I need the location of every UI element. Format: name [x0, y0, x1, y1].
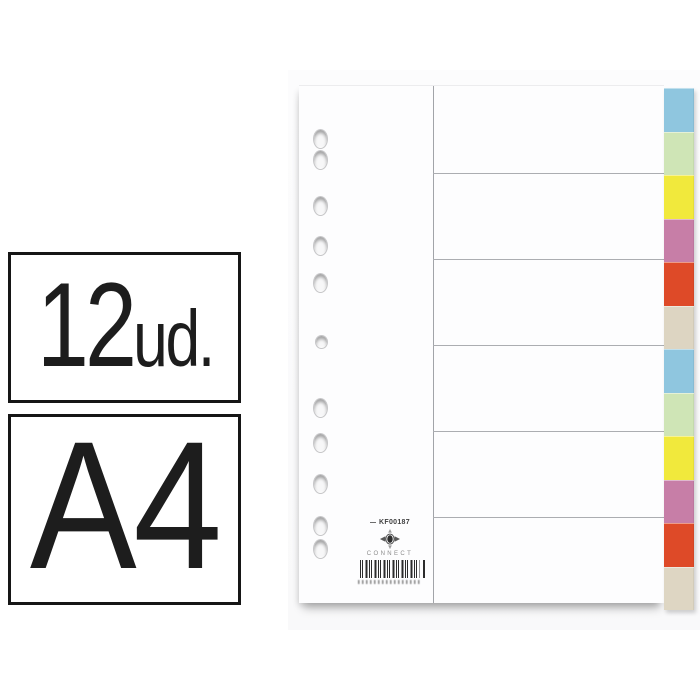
brand-logo-icon — [379, 529, 401, 550]
color-tab-1 — [664, 88, 694, 132]
punched-hole — [313, 196, 328, 216]
punched-hole — [313, 398, 328, 418]
index-rule-line — [433, 173, 664, 174]
divider-sheet: KF00187 CONNECT — [299, 85, 664, 603]
printed-label: KF00187 CONNECT — [350, 519, 430, 584]
index-rule-line — [433, 517, 664, 518]
color-tab-10 — [664, 480, 694, 524]
product-code: KF00187 — [379, 519, 410, 526]
product-image: 12ud. A4 KF00187 — [0, 0, 700, 700]
color-tab-6 — [664, 306, 694, 350]
punched-hole — [313, 273, 328, 293]
product-code-line: KF00187 — [350, 519, 430, 526]
punched-hole — [313, 433, 328, 453]
units-badge: 12ud. — [8, 252, 241, 403]
color-tab-12 — [664, 567, 694, 611]
color-tab-11 — [664, 523, 694, 567]
punched-hole — [313, 474, 328, 494]
index-rule-line — [433, 431, 664, 432]
barcode — [360, 560, 420, 578]
brand-name: CONNECT — [350, 551, 430, 557]
color-tab-5 — [664, 262, 694, 306]
punched-hole — [315, 335, 328, 349]
color-tab-2 — [664, 132, 694, 176]
color-tab-7 — [664, 349, 694, 393]
format-badge: A4 — [8, 414, 241, 605]
tab-strip — [664, 88, 694, 610]
format-value: A4 — [30, 414, 219, 596]
units-text: 12ud. — [36, 265, 212, 385]
index-rule-line — [433, 259, 664, 260]
code-prefix-mark — [370, 522, 376, 523]
color-tab-8 — [664, 393, 694, 437]
punched-hole — [313, 150, 328, 170]
units-value: 12 — [36, 258, 132, 392]
color-tab-9 — [664, 436, 694, 480]
punched-hole — [313, 516, 328, 536]
units-suffix: ud. — [133, 294, 213, 383]
barcode-digits — [358, 580, 422, 584]
index-rule-line — [433, 345, 664, 346]
color-tab-4 — [664, 219, 694, 263]
color-tab-3 — [664, 175, 694, 219]
punched-hole — [313, 129, 328, 149]
punched-hole — [313, 236, 328, 256]
punched-hole — [313, 539, 328, 559]
